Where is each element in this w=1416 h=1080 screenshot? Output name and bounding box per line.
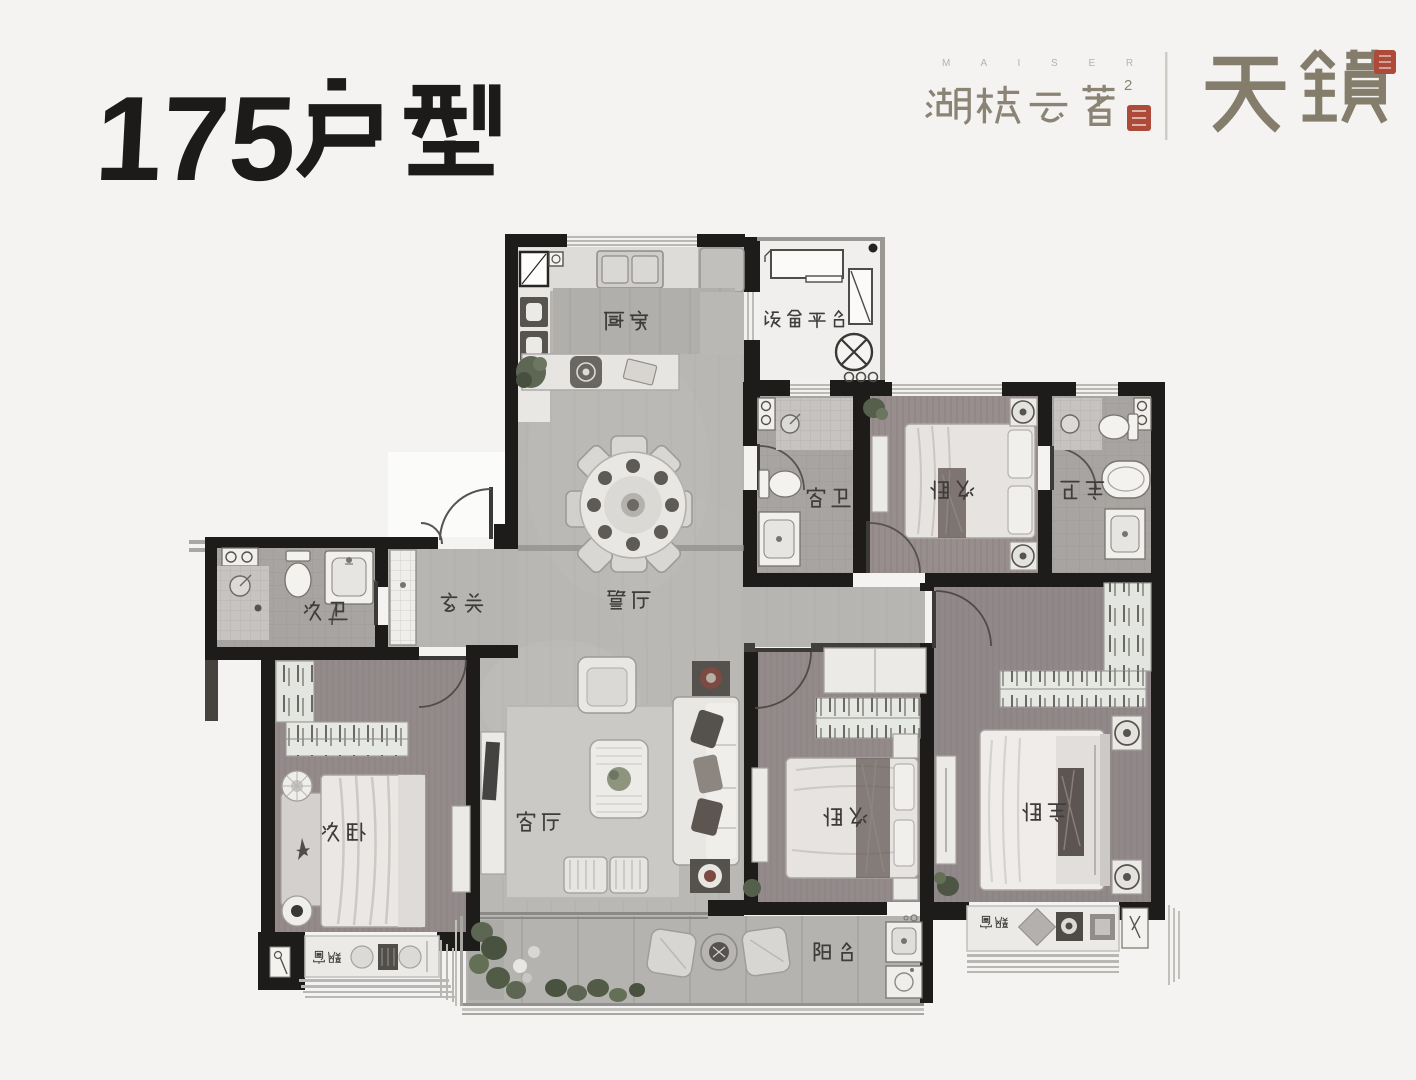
svg-text:175: 175	[92, 72, 299, 206]
svg-text:2: 2	[1124, 77, 1132, 94]
svg-text:M A I S E R: M A I S E R	[942, 58, 1147, 69]
